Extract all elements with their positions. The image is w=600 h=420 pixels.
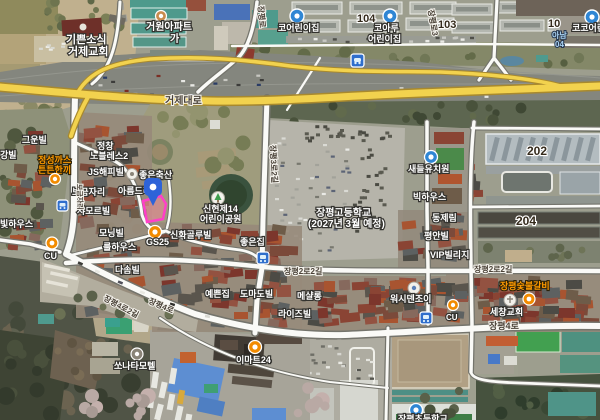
svg-text:워시덴조이: 워시덴조이	[390, 293, 431, 304]
svg-text:거제대로: 거제대로	[165, 94, 202, 107]
svg-text:메샬롱: 메샬롱	[297, 290, 322, 301]
svg-text:103: 103	[438, 19, 456, 31]
svg-text:정성까스: 정성까스	[38, 154, 72, 165]
svg-text:거원아파트: 거원아파트	[146, 20, 192, 33]
svg-text:신현제14: 신현제14	[203, 203, 238, 214]
svg-text:CU: CU	[44, 251, 57, 261]
svg-text:204: 204	[516, 214, 536, 228]
svg-text:빛하우스: 빛하우스	[0, 218, 34, 229]
svg-text:VIP빌리지: VIP빌리지	[430, 249, 469, 260]
svg-text:어린이집: 어린이집	[368, 33, 401, 44]
svg-text:도마도빌: 도마도빌	[240, 288, 273, 299]
svg-text:다솜빌: 다솜빌	[115, 264, 140, 275]
svg-text:쏘나타모텔: 쏘나타모텔	[114, 360, 155, 371]
svg-text:코코어린이: 코코어린이	[572, 22, 600, 33]
svg-text:202: 202	[527, 144, 547, 158]
svg-text:04: 04	[555, 40, 564, 49]
svg-text:GS25: GS25	[146, 237, 169, 247]
svg-text:거제교회: 거제교회	[68, 44, 108, 58]
svg-text:장평2로2길: 장평2로2길	[474, 264, 512, 274]
svg-text:어린이공원: 어린이공원	[200, 213, 241, 224]
svg-text:가: 가	[170, 32, 180, 45]
svg-text:모닝빌: 모닝빌	[99, 227, 124, 238]
svg-text:(2027년 3월 예정): (2027년 3월 예정)	[308, 217, 385, 230]
svg-text:평안빌: 평안빌	[424, 230, 449, 241]
svg-text:장평숯불갈비: 장평숯불갈비	[500, 280, 550, 291]
svg-text:기쁜소식: 기쁜소식	[66, 32, 106, 46]
svg-text:장평초등학교: 장평초등학교	[398, 413, 448, 420]
svg-text:장평3로2길: 장평3로2길	[268, 145, 280, 184]
svg-text:빅하우스: 빅하우스	[413, 191, 447, 202]
svg-text:라이즈빌: 라이즈빌	[278, 308, 311, 319]
svg-text:강빌: 강빌	[0, 149, 17, 160]
svg-text:장평고등학교: 장평고등학교	[316, 206, 371, 219]
svg-text:그운빌: 그운빌	[22, 134, 47, 145]
svg-text:코아루: 코아루	[374, 22, 399, 33]
svg-text:세창교회: 세창교회	[490, 306, 523, 317]
svg-text:코어린이집: 코어린이집	[278, 22, 319, 33]
svg-text:노블레스2: 노블레스2	[90, 150, 128, 161]
svg-text:정창: 정창	[97, 140, 114, 151]
svg-text:장평4로: 장평4로	[489, 320, 520, 331]
svg-text:10: 10	[548, 18, 560, 30]
svg-text:예쁜집: 예쁜집	[205, 288, 230, 299]
svg-text:동제림: 동제림	[432, 212, 457, 223]
svg-text:새들유치원: 새들유치원	[408, 163, 449, 174]
svg-text:룰하우스: 룰하우스	[103, 241, 137, 252]
svg-text:JS해피빌: JS해피빌	[88, 166, 124, 177]
svg-text:아남: 아남	[552, 30, 567, 40]
svg-text:이마트24: 이마트24	[236, 354, 271, 365]
svg-text:장평2로2길: 장평2로2길	[284, 266, 322, 276]
svg-text:CU: CU	[446, 313, 458, 322]
svg-text:신화골루빌: 신화골루빌	[170, 229, 211, 240]
svg-text:좋은집: 좋은집	[240, 236, 265, 247]
svg-text:장평로: 장평로	[256, 5, 268, 29]
